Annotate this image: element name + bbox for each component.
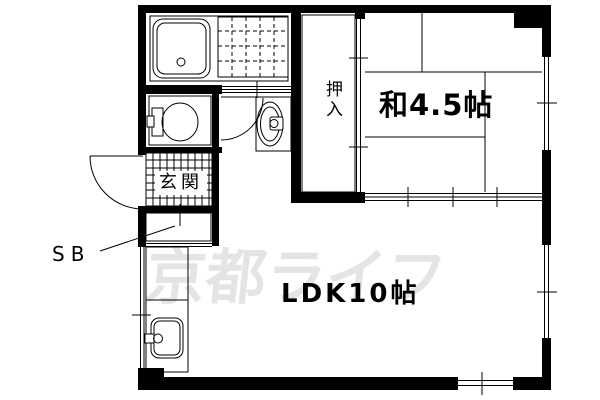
bath-tile-floor (218, 17, 288, 77)
bathtub-icon (153, 19, 210, 78)
floorplan: 京都ライフ (0, 0, 600, 400)
wall-left-upper (138, 5, 146, 155)
window-right-upper (537, 57, 557, 150)
floorplan-linework (0, 0, 600, 400)
kitchen (145, 247, 188, 372)
washbasin-faucet (270, 117, 283, 130)
ldk-label: LDK10帖 (281, 281, 419, 307)
kitchen-sink-icon (151, 318, 183, 358)
closet-label: 押入 (323, 80, 340, 120)
bathroom-outline (150, 16, 288, 81)
shoe-box (100, 213, 212, 251)
bath-sliding-door (222, 81, 291, 98)
washroom (221, 97, 291, 151)
kitchen-faucet-knob (154, 334, 163, 343)
wall-right-upper (542, 13, 551, 57)
wall-genkan-bottom (138, 206, 218, 213)
wall-bottom-2 (513, 377, 551, 390)
wall-toilet-genkan-right (212, 93, 219, 246)
kitchen-counter (146, 247, 188, 372)
entrance-label: 玄関 (155, 171, 207, 195)
window-right-lower (537, 245, 557, 338)
kitchen-faucet (145, 334, 154, 343)
entrance-door-swing (90, 156, 143, 209)
window-left-kitchen (132, 247, 151, 368)
wall-bath-bottom (146, 85, 222, 94)
wall-top (138, 5, 551, 13)
shoe-box-label: SB (52, 244, 90, 264)
washroom-door-swing (221, 98, 263, 140)
japanese-room-label: 和4.5帖 (379, 91, 493, 120)
kitchen-sink-inner (154, 321, 180, 355)
wall-closet-bottom (291, 192, 365, 203)
shoe-box-outline (146, 213, 211, 241)
bath-tile-border (218, 17, 288, 77)
wall-bottom-1 (138, 377, 458, 390)
wall-bath-closet (291, 5, 301, 203)
toilet-flush-handle (147, 116, 154, 127)
wall-right-mid (542, 150, 551, 245)
fusuma-sliding-door-south (365, 187, 542, 207)
wall-under-toilet (138, 147, 222, 153)
bathtub-drain (177, 58, 185, 66)
toilet-icon (162, 103, 198, 141)
window-bottom (458, 372, 513, 395)
toilet-room (147, 96, 211, 145)
